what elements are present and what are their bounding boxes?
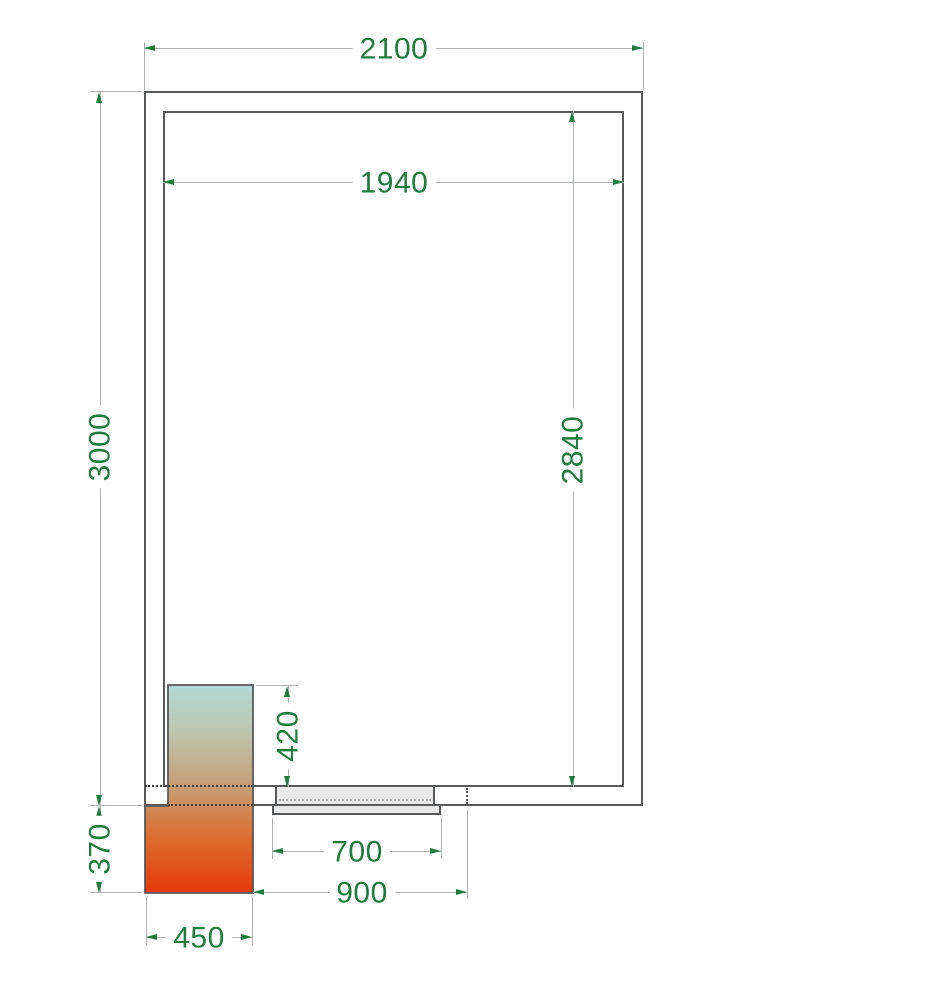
arrow-down-icon [96,795,102,806]
dim-door-leaf-ext-right [441,818,442,859]
door-opening-hatch [279,799,431,801]
arrow-down-icon [569,776,575,787]
arrow-left-icon [146,934,157,940]
dim-outer-width-label: 2100 [353,33,436,65]
hidden-outer-wall-line [168,804,253,806]
floor-plan-canvas: 2100 1940 3000 2840 420 370 700 900 450 [0,0,941,1000]
dim-unit-outside-label: 370 [84,816,116,882]
dim-door-overall-hidden-ext [466,788,468,804]
hidden-inner-wall-line [145,785,253,787]
door-leaf [272,804,441,815]
dim-unit-width-label: 450 [166,922,232,954]
dim-door-leaf-label: 700 [324,836,390,868]
arrow-right-icon [613,179,624,185]
dim-inner-height-label: 2840 [557,409,589,492]
arrow-left-icon [253,889,264,895]
arrow-down-icon [96,882,102,893]
dim-unit-inside-ext [256,685,298,686]
arrow-right-icon [632,45,643,51]
arrow-left-icon [163,179,174,185]
dim-door-overall-ext-right [467,810,468,899]
dim-unit-inside-label: 420 [272,703,304,769]
arrow-down-icon [284,776,290,787]
arrow-right-icon [430,848,441,854]
arrow-left-icon [272,848,283,854]
arrow-up-icon [569,111,575,122]
arrow-right-icon [456,889,467,895]
dim-unit-width-ext-right [252,897,253,945]
dim-inner-width-label: 1940 [353,167,436,199]
door-opening [275,785,435,806]
arrow-up-icon [96,92,102,103]
arrow-right-icon [241,934,252,940]
dim-outer-height-label: 3000 [84,406,116,489]
cooling-unit-block [144,684,254,894]
arrow-up-icon [284,686,290,697]
dim-door-overall-label: 900 [329,877,395,909]
arrow-left-icon [144,45,155,51]
dim-outer-width-ext-right [643,42,644,90]
